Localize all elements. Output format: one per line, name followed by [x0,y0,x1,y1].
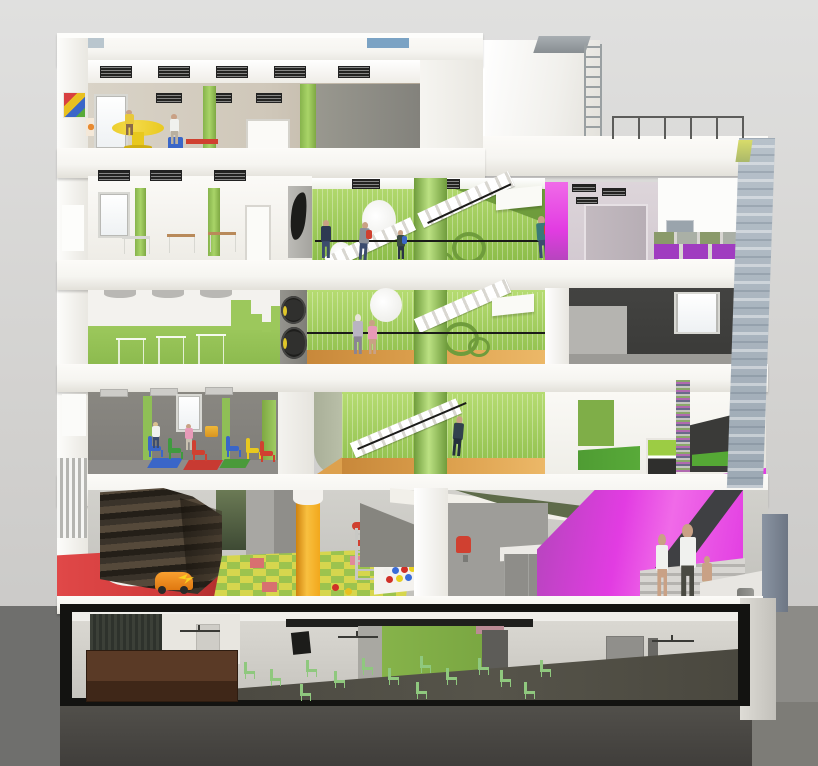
skyline-block [262,322,271,332]
pit-ball [386,576,393,583]
auditorium-chair [244,662,257,679]
child-figure [655,534,670,596]
corridor-door [584,204,648,262]
sky-sliver-right [367,37,409,48]
running-child [396,230,406,259]
orange-column-cap [293,490,323,505]
ceiling-vent [205,387,233,395]
ceiling-vent [352,179,380,189]
yellow-accent-dot [283,338,287,349]
parent-figure [678,524,698,598]
yellow-accent-dot [283,306,287,316]
auditorium-chair [524,682,537,699]
sketch-desk-legs [124,239,150,254]
floor4-door [245,205,271,262]
toy-car-wheel [180,586,188,594]
ceiling-light-slot [602,188,626,196]
seated-child [151,422,161,448]
auditorium-chair [300,684,313,701]
play-ball [345,588,352,595]
kid-chair [260,441,274,462]
red-mat-tile [250,558,264,568]
cubby-row-upper [654,232,742,244]
ceiling-light-slot [576,197,598,204]
ceiling-fan [180,630,220,632]
ground-under-building [60,700,752,766]
backpack [366,230,372,239]
ceiling-vent [274,66,306,78]
toy-car-wheel [158,586,166,594]
pit-ball [405,574,412,581]
ceiling-vent [338,66,370,78]
wall-speaker [291,631,311,655]
roof-slab-right-wing [483,136,768,176]
child-figure [169,114,180,144]
slat-screen [57,458,87,538]
walking-child [367,320,378,354]
auditorium-chair [420,656,433,673]
pit-ball [401,566,408,573]
floor-slab [57,260,768,290]
auditorium-chair [388,668,401,685]
magenta-wall-strip [545,182,568,262]
green-pilaster [300,84,316,150]
ceiling-vent [98,170,130,181]
ceiling-light-slot [572,184,596,192]
running-child [320,220,332,258]
auditorium-chair [362,658,375,675]
porthole-disc [370,288,402,322]
ceiling-vent [216,66,248,78]
ghost-desk-outline [156,336,186,365]
seated-child [184,424,194,450]
floor2-white-wall [278,392,314,476]
roof-parapet-cap [57,33,483,38]
red-mat-tile [262,582,277,592]
play-ball [332,584,339,591]
sketch-desk-legs [169,237,195,253]
auditorium-chair [306,660,319,677]
kid-chair [168,438,182,459]
roof-ladder-icon [584,44,602,148]
auditorium-chair [540,660,553,677]
cabinet [646,438,678,476]
stage-wood-floor [86,650,238,702]
skyline-block [271,306,280,330]
ceiling-vent [150,170,182,181]
skyline-block [231,300,251,330]
kid-chair [192,440,206,461]
floor3-window [674,292,720,334]
ceiling-fan [652,640,694,642]
orange-column [296,492,320,596]
ceiling-vent [158,66,190,78]
roof-railing [612,116,744,139]
floor5-right-wall [420,60,483,150]
ceiling-vent [214,170,246,181]
roof-vent-cap [533,36,591,53]
ceiling-vent [100,66,132,78]
green-back-wall [578,400,614,446]
ghost-desk-outline [116,338,146,366]
floor-mat-red [183,460,223,470]
auditorium-chair [446,668,459,685]
ceiling-vent [256,93,282,103]
floor3-divider-wall [545,288,569,366]
sketch-desk-legs [210,235,236,252]
walking-child [352,314,364,354]
wall-poster [63,92,86,118]
handrail [307,332,545,334]
ceiling-fan [338,636,378,638]
left-wall-panel [62,394,86,436]
ghost-desk-outline [196,334,226,364]
ceiling-light-fixture [200,290,232,298]
cubby-row-purple [654,244,742,259]
toy-basket [205,426,218,437]
auditorium-chair [416,682,429,699]
green-ring-decor [468,337,490,357]
structural-white-column [414,488,448,600]
ceiling-vent [150,388,178,396]
left-wall-panel [62,205,84,251]
elevator-panel [246,490,274,558]
child-figure [124,110,135,135]
auditorium-chair [270,669,283,686]
ceiling-light-fixture [104,290,136,298]
red-table [186,139,218,144]
kid-chair [226,436,240,457]
ground-plane-left [0,606,62,766]
kid-chair [246,438,260,459]
handrail [315,240,545,242]
ceiling-light-fixture [152,290,184,298]
backpack [402,236,407,244]
pit-ball [396,575,403,582]
floor-mat-green [219,459,250,468]
ceiling-vent [100,389,128,397]
pit-ball [392,567,399,574]
architectural-section-scene [0,0,818,766]
skyline-block [251,314,262,330]
floor4-window [98,192,130,238]
floor5-gray-partition [316,84,420,150]
pit-ball [383,568,390,575]
ceiling-vent [156,93,182,103]
auditorium-chair [478,658,491,675]
auditorium-chair [334,671,347,688]
red-office-chair [456,536,471,553]
floor-mat-blue [147,458,183,468]
auditorium-chair [500,670,513,687]
striped-column [676,380,690,472]
